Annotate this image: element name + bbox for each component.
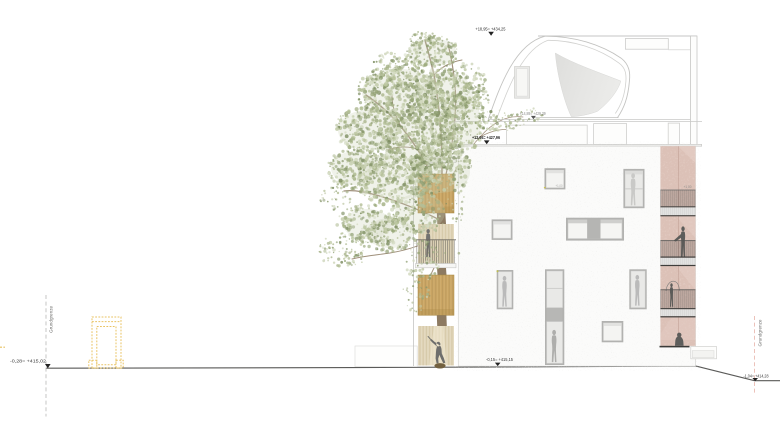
svg-text:-1,04= +414,28: -1,04= +414,28 [744,373,769,378]
svg-text:+1,00: +1,00 [684,185,692,189]
svg-text:-0,28= +415,02: -0,28= +415,02 [10,359,47,364]
svg-text:+14,89= +429,39: +14,89= +429,39 [520,111,546,116]
svg-text:Grundgrenze: Grundgrenze [758,319,763,346]
svg-text:+1,00: +1,00 [556,184,563,188]
svg-text:+12,66= +427,96: +12,66= +427,96 [472,135,500,140]
svg-text:Grundgrenze: Grundgrenze [49,305,54,332]
svg-text:+18,95= +434,25: +18,95= +434,25 [475,26,505,31]
svg-text:-0,15= +415,15: -0,15= +415,15 [486,357,513,362]
